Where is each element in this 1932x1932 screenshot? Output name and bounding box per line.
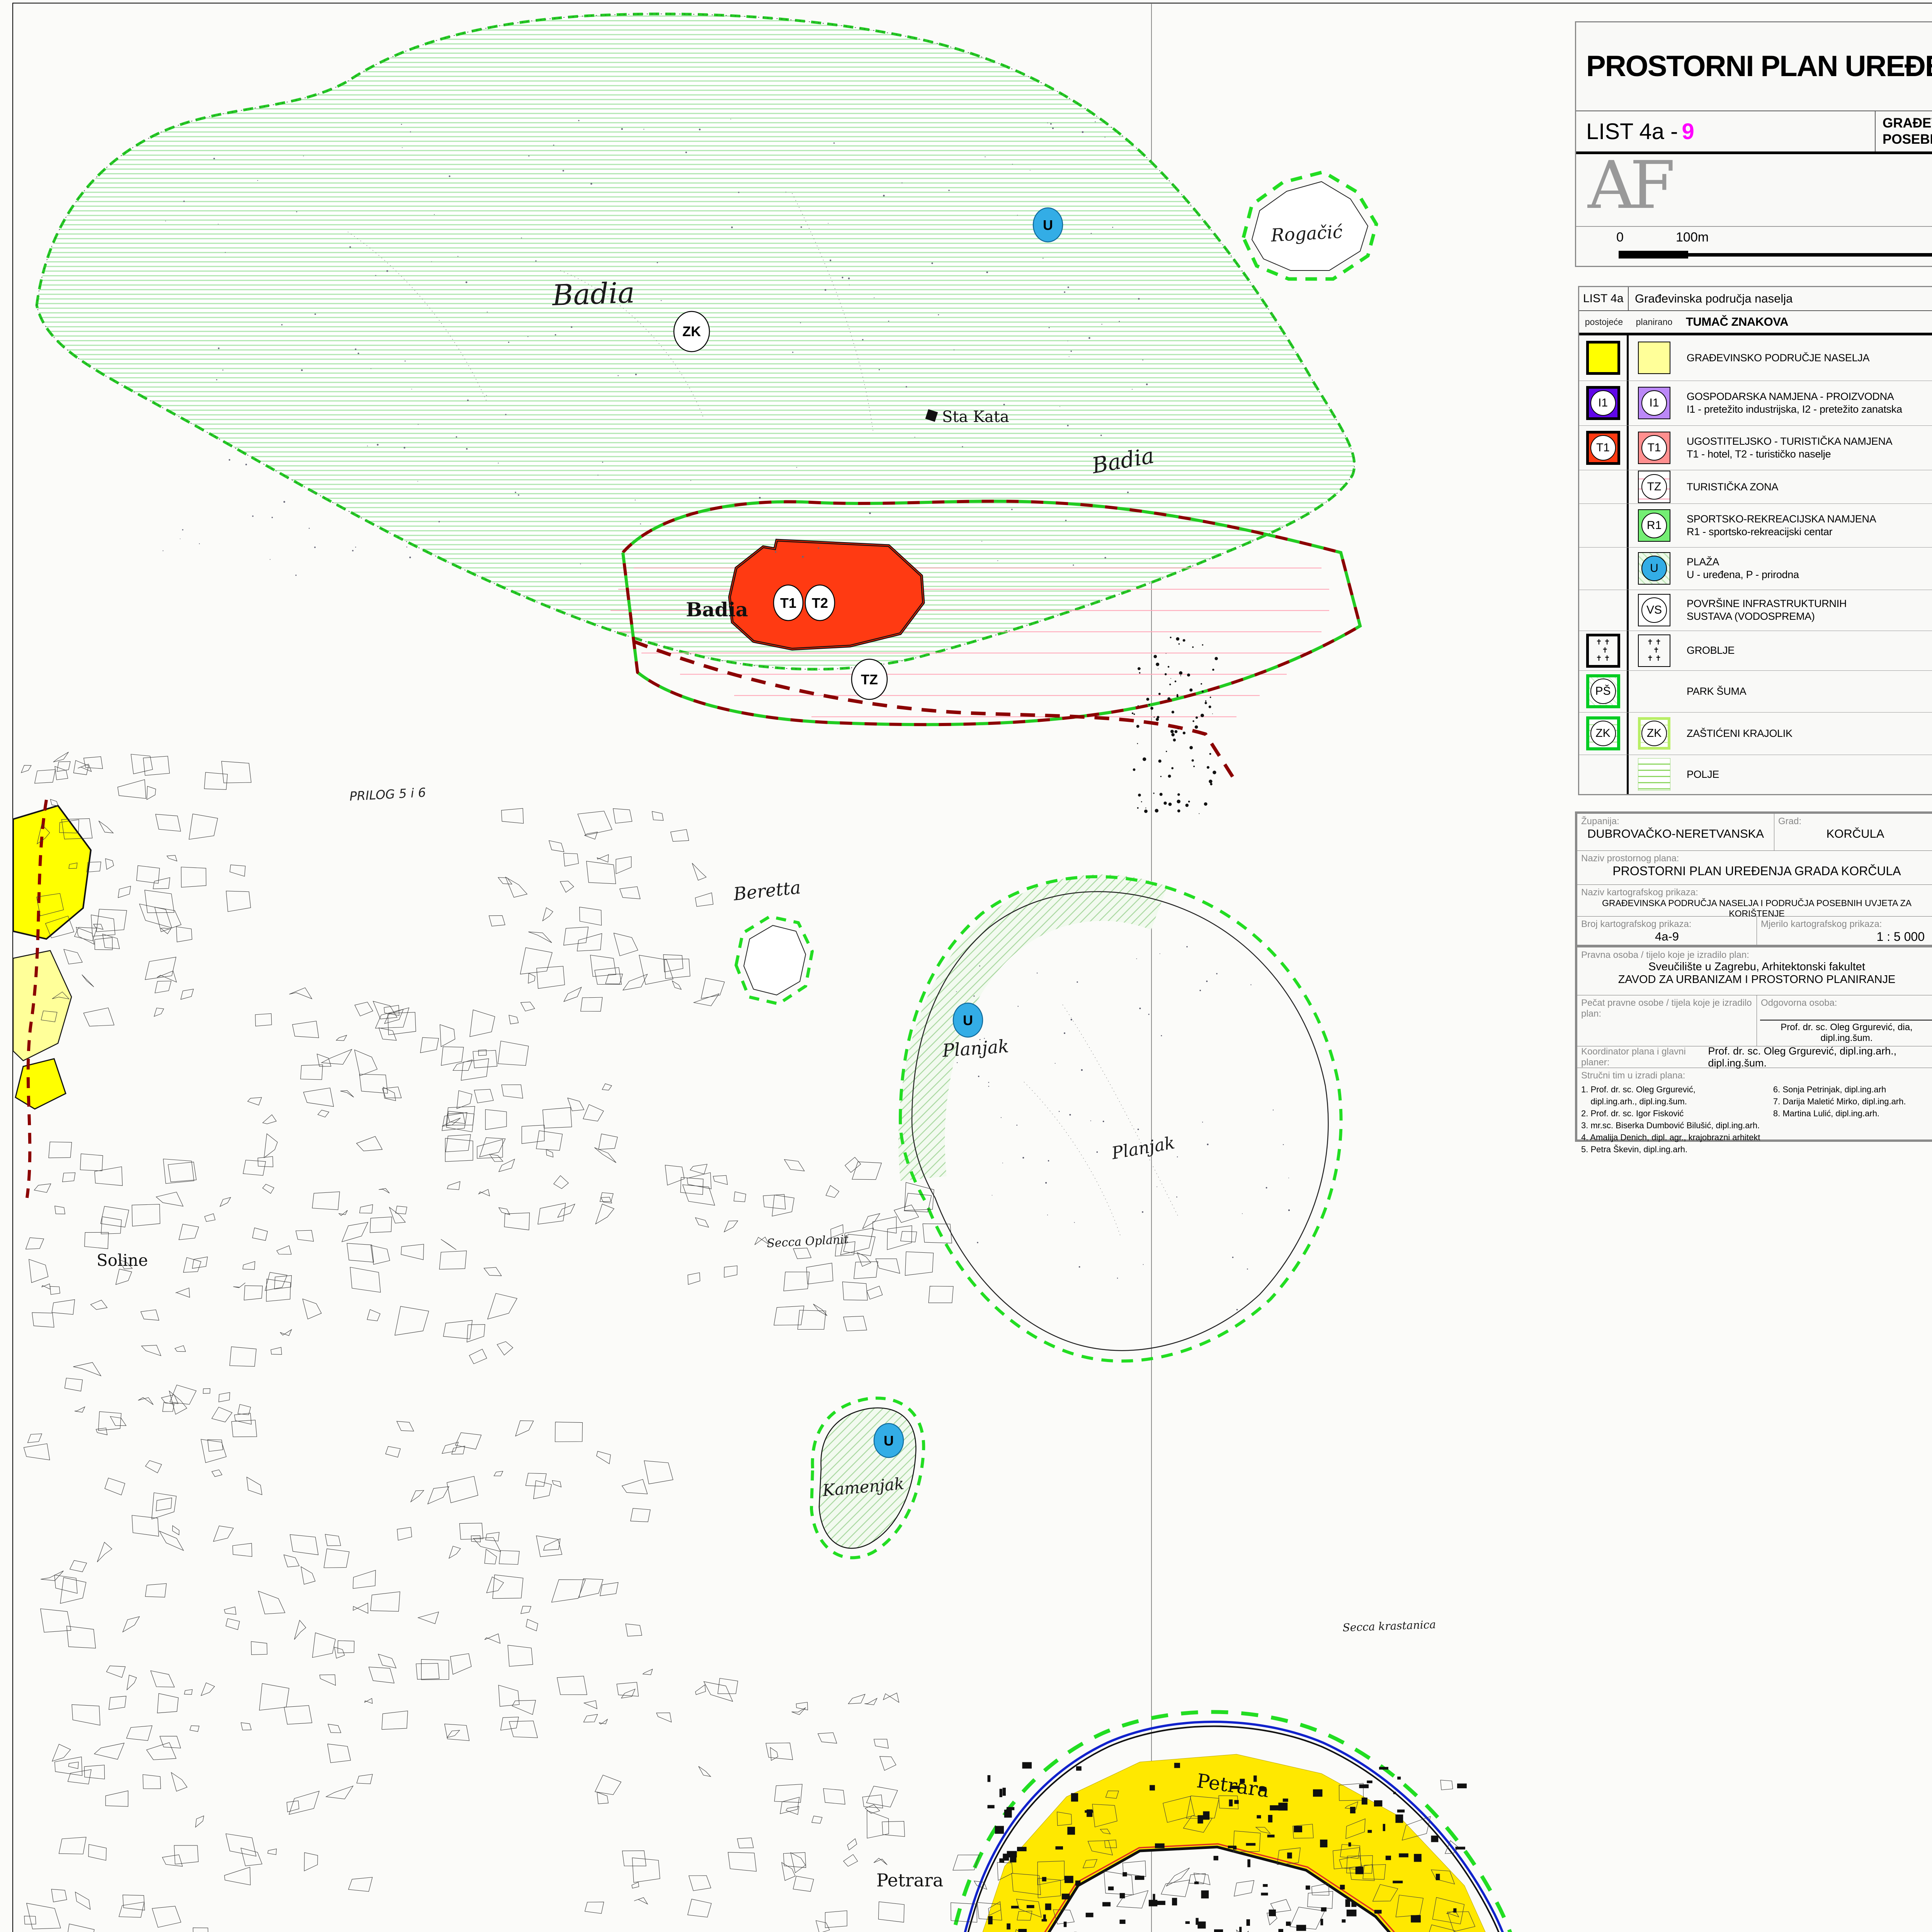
field-grad: Grad: KORČULA: [1774, 814, 1932, 850]
badge-zk: ZK: [1590, 721, 1616, 746]
field-label: Mjerilo kartografskog prikaza:: [1757, 917, 1932, 930]
field-label: Stručni tim u izradi plana:: [1577, 1068, 1932, 1081]
legend-row-gpn: GRAĐEVINSKO PODRUČJE NASELJA: [1579, 335, 1932, 381]
col-existing: postojeće: [1579, 317, 1629, 327]
tim-member: dipl.ing.arh., dipl.ing.šum.: [1581, 1095, 1773, 1107]
legend-row-polje: POLJE: [1579, 755, 1932, 794]
field-label: Naziv kartografskog prikaza:: [1577, 885, 1932, 898]
legend-label: PARK ŠUMA: [1687, 685, 1932, 698]
label-planjak-2: Planjak: [1110, 1133, 1176, 1163]
tim-member: 4. Amalija Denich, dipl. agr., krajobraz…: [1581, 1131, 1773, 1143]
peninsula-petrara: [916, 1712, 1528, 1932]
label-secca-krastanica: Secca krastanica: [1342, 1618, 1436, 1634]
swatch-t1-existing: T1: [1586, 431, 1620, 465]
legend-label: POLJE: [1687, 768, 1932, 781]
field-label: Pravna osoba / tijelo koje je izradilo p…: [1577, 947, 1932, 961]
legend-row-tz: TZ TURISTIČKA ZONA: [1579, 470, 1932, 504]
swatch-ps: PŠ: [1586, 674, 1620, 708]
tim-member: 2. Prof. dr. sc. Igor Fisković: [1581, 1107, 1773, 1119]
field-zupanija: Županija: DUBROVAČKO-NERETVANSKA: [1577, 814, 1774, 850]
legend-sublabel: T1 - hotel, T2 - turističko naselje: [1687, 448, 1932, 461]
label-secca-oplanit: Secca Oplanit: [767, 1233, 849, 1250]
svg-text:T1: T1: [780, 595, 796, 611]
legend-label: UGOSTITELJSKO - TURISTIČKA NAMJENA: [1687, 435, 1932, 448]
svg-text:U: U: [1043, 217, 1053, 233]
col-planned: planirano: [1629, 317, 1680, 327]
marker-t2: T2: [805, 585, 835, 621]
label-prilog: PRILOG 5 i 6: [349, 785, 426, 804]
field-pecat-pravne: Pečat pravne osobe / tijela koje je izra…: [1577, 995, 1757, 1046]
legend-sublabel: I1 - pretežito industrijska, I2 - pretež…: [1687, 403, 1932, 416]
info-table: Županija: DUBROVAČKO-NERETVANSKA Grad: K…: [1575, 811, 1932, 1142]
scale-100m: 100m: [1676, 230, 1709, 245]
tim-column-2: 6. Sonja Petrinjak, dipl.ing.arh 7. Dari…: [1773, 1083, 1932, 1155]
label-rogacic: Rogačić: [1270, 221, 1343, 246]
map-subtitle: GRAĐEVINSKA PODRUČJA NASELJA I PODRUČJA …: [1876, 111, 1932, 151]
swatch-i1-planned: I1: [1638, 387, 1670, 419]
marker-u-planjak: U: [953, 1003, 983, 1037]
legend-sublabel: R1 - sportsko-rekreacijski centar: [1687, 526, 1932, 538]
field-strucni-tim: Stručni tim u izradi plana: 1. Prof. dr.…: [1577, 1068, 1932, 1155]
swatch-beach: U: [1638, 552, 1670, 585]
swatch-yellow-planned: [1638, 342, 1670, 374]
tim-member: 6. Sonja Petrinjak, dipl.ing.arh: [1773, 1083, 1932, 1095]
legend-sublabel: SUSTAVA (VODOSPREMA): [1687, 610, 1932, 623]
swatch-tz: TZ: [1638, 471, 1670, 503]
swatch-r1: R1: [1638, 509, 1670, 542]
field-mjerilo: Mjerilo kartografskog prikaza: 1 : 5 000: [1757, 917, 1932, 945]
legend-label: TURISTIČKA ZONA: [1687, 481, 1932, 493]
field-value: Prof. dr. sc. Oleg Grgurević, dia, dipl.…: [1760, 1020, 1932, 1044]
scale-bar: 0 100m 500m: [1576, 226, 1932, 267]
tim-member: 8. Martina Lulić, dipl.ing.arh.: [1773, 1107, 1932, 1119]
field-naziv-plana: Naziv prostornog plana: PROSTORNI PLAN U…: [1577, 851, 1932, 884]
field-value: 4a-9: [1577, 930, 1757, 944]
title-block: PROSTORNI PLAN UREĐENJA GRADA KORČULE LI…: [1575, 21, 1932, 267]
svg-text:U: U: [963, 1012, 973, 1028]
field-pravna-osoba: Pravna osoba / tijelo koje je izradilo p…: [1577, 947, 1932, 995]
field-label: Grad:: [1774, 814, 1932, 827]
svg-text:ZK: ZK: [682, 323, 701, 339]
field-label: Županija:: [1577, 814, 1774, 827]
marker-t1: T1: [774, 585, 803, 621]
scale-bar-thin-segment: [1688, 253, 1932, 257]
scale-0: 0: [1616, 230, 1624, 245]
label-sta-kata: Sta Kata: [942, 408, 1009, 426]
swatch-vs: VS: [1638, 594, 1670, 626]
legend-left-title: Građevinska područja naselja: [1629, 292, 1932, 306]
label-badia-main: Badia: [551, 276, 636, 312]
swatch-i1-existing: I1: [1586, 386, 1620, 420]
swatch-cemetery-existing: [1586, 634, 1620, 668]
legend-label: SPORTSKO-REKREACIJSKA NAMJENA: [1687, 513, 1932, 526]
col-symbols: TUMAČ ZNAKOVA: [1680, 315, 1932, 329]
svg-text:T2: T2: [812, 595, 828, 611]
field-value: Prof. dr. sc. Oleg Grgurević, dipl.ing.a…: [1708, 1045, 1932, 1069]
zone-soline: [13, 800, 91, 1198]
legend-row-gospodarska: I1 I1 GOSPODARSKA NAMJENA - PROIZVODNAI1…: [1579, 381, 1932, 426]
legend-label: POVRŠINE INFRASTRUKTURNIH: [1687, 597, 1932, 610]
field-naziv-prikaza: Naziv kartografskog prikaza: GRAĐEVINSKA…: [1577, 885, 1932, 916]
marker-zk: ZK: [674, 311, 709, 352]
field-value: KORČULA: [1774, 827, 1932, 841]
marker-u-kamenjak: U: [874, 1423, 903, 1458]
swatch-yellow-existing: [1586, 341, 1620, 375]
field-value: Sveučilište u Zagrebu, Arhitektonski fak…: [1577, 961, 1932, 973]
marker-u-badia: U: [1033, 208, 1063, 242]
sheet-number-value: 9: [1682, 119, 1694, 145]
island-beretta: [736, 917, 812, 1004]
badge-vs: VS: [1641, 597, 1667, 623]
tim-member: 3. mr.sc. Biserka Dumbović Bilušić, dipl…: [1581, 1119, 1773, 1131]
legend-label: GRAĐEVINSKO PODRUČJE NASELJA: [1687, 352, 1932, 364]
swatch-zk-existing: ZK: [1586, 716, 1620, 750]
sheet-number-prefix: LIST 4a -: [1586, 119, 1678, 145]
label-badia-monastery: Badia: [686, 598, 748, 621]
badge-i1: I1: [1641, 390, 1667, 416]
field-label: Koordinator plana i glavni planer:: [1577, 1046, 1708, 1068]
tim-member: 1. Prof. dr. sc. Oleg Grgurević,: [1581, 1083, 1773, 1095]
legend-label: GOSPODARSKA NAMJENA - PROIZVODNA: [1687, 390, 1932, 403]
field-broj-prikaza: Broj kartografskog prikaza: 4a-9: [1577, 917, 1757, 945]
swatch-zk-planned: ZK: [1638, 717, 1670, 750]
tim-column-1: 1. Prof. dr. sc. Oleg Grgurević, dipl.in…: [1581, 1083, 1773, 1155]
field-label: Pečat pravne osobe / tijela koje je izra…: [1577, 995, 1757, 1019]
field-label: Broj kartografskog prikaza:: [1577, 917, 1757, 930]
badge-t1: T1: [1590, 435, 1616, 461]
legend-row-turisticka: T1 T1 UGOSTITELJSKO - TURISTIČKA NAMJENA…: [1579, 426, 1932, 471]
field-value: ZAVOD ZA URBANIZAM I PROSTORNO PLANIRANJ…: [1577, 973, 1932, 986]
svg-text:TZ: TZ: [861, 672, 878, 687]
tim-member: 7. Darija Maletić Mirko, dipl.ing.arh.: [1773, 1095, 1932, 1107]
marker-tz: TZ: [852, 659, 887, 699]
field-value: DUBROVAČKO-NERETVANSKA: [1577, 827, 1774, 841]
plan-sheet: Badia Badia Badia Sta Kata Rogačić Beret…: [0, 0, 1932, 1932]
sheet-number: LIST 4a - 9: [1576, 111, 1876, 151]
field-label: Naziv prostornog plana:: [1577, 851, 1932, 864]
field-value: GRAĐEVINSKA PODRUČJA NASELJA I PODRUČJA …: [1577, 898, 1932, 919]
badge-tz: TZ: [1641, 474, 1667, 500]
island-planjak: [900, 877, 1341, 1361]
swatch-t1-planned: T1: [1638, 432, 1670, 464]
field-value: 1 : 5 000: [1757, 930, 1932, 944]
badge-r1: R1: [1641, 513, 1667, 538]
badge-zk: ZK: [1641, 721, 1667, 746]
tim-member: 5. Petra Škevin, dipl.ing.arh.: [1581, 1143, 1773, 1155]
field-odgovorna-osoba: Odgovorna osoba: Prof. dr. sc. Oleg Grgu…: [1757, 995, 1932, 1046]
label-soline: Soline: [97, 1251, 148, 1270]
legend-label: ZAŠTIĆENI KRAJOLIK: [1687, 727, 1932, 740]
badge-i1: I1: [1590, 390, 1616, 416]
badge-t1: T1: [1641, 435, 1667, 461]
legend-row-zk: ZK ZK ZAŠTIĆENI KRAJOLIK: [1579, 713, 1932, 755]
legend-label: GROBLJE: [1687, 644, 1932, 657]
field-value: PROSTORNI PLAN UREĐENJA GRADA KORČULA: [1577, 864, 1932, 878]
badge-ps: PŠ: [1590, 679, 1616, 704]
legend-row-sportsko: R1 SPORTSKO-REKREACIJSKA NAMJENAR1 - spo…: [1579, 504, 1932, 548]
legend-row-plaza: U PLAŽAU - uređena, P - prirodna: [1579, 548, 1932, 590]
swatch-cemetery-planned: [1638, 634, 1670, 667]
legend-row-groblje: GROBLJE: [1579, 631, 1932, 671]
map-subtitle-line1: GRAĐEVINSKA PODRUČJA NASELJA I PODRUČJA: [1883, 115, 1932, 131]
swatch-polje: [1638, 758, 1670, 791]
legend-label: PLAŽA: [1687, 556, 1932, 568]
plan-title: PROSTORNI PLAN UREĐENJA GRADA KORČULE: [1576, 22, 1932, 111]
label-petrara-w: Petrara: [876, 1870, 943, 1891]
legend-left-list: LIST 4a: [1579, 287, 1629, 310]
scale-bar-thick-segment: [1619, 251, 1688, 259]
legend-row-vs: VS POVRŠINE INFRASTRUKTURNIHSUSTAVA (VOD…: [1579, 590, 1932, 631]
svg-text:U: U: [884, 1433, 894, 1449]
legend-panel-left: LIST 4a Građevinska područja naselja pos…: [1578, 286, 1932, 795]
legend-row-park-suma: PŠ PARK ŠUMA: [1579, 671, 1932, 713]
field-label: Odgovorna osoba:: [1757, 995, 1932, 1009]
badge-u: U: [1641, 556, 1667, 581]
af-logo: AF: [1588, 147, 1670, 224]
legend-sublabel: U - uređena, P - prirodna: [1687, 568, 1932, 581]
map-subtitle-line2: POSEBNIH UVJETA ZA KORIŠTENJE: [1883, 131, 1932, 148]
label-beretta: Beretta: [732, 877, 802, 905]
label-planjak-1: Planjak: [941, 1036, 1010, 1061]
field-koordinator: Koordinator plana i glavni planer: Prof.…: [1577, 1045, 1932, 1069]
